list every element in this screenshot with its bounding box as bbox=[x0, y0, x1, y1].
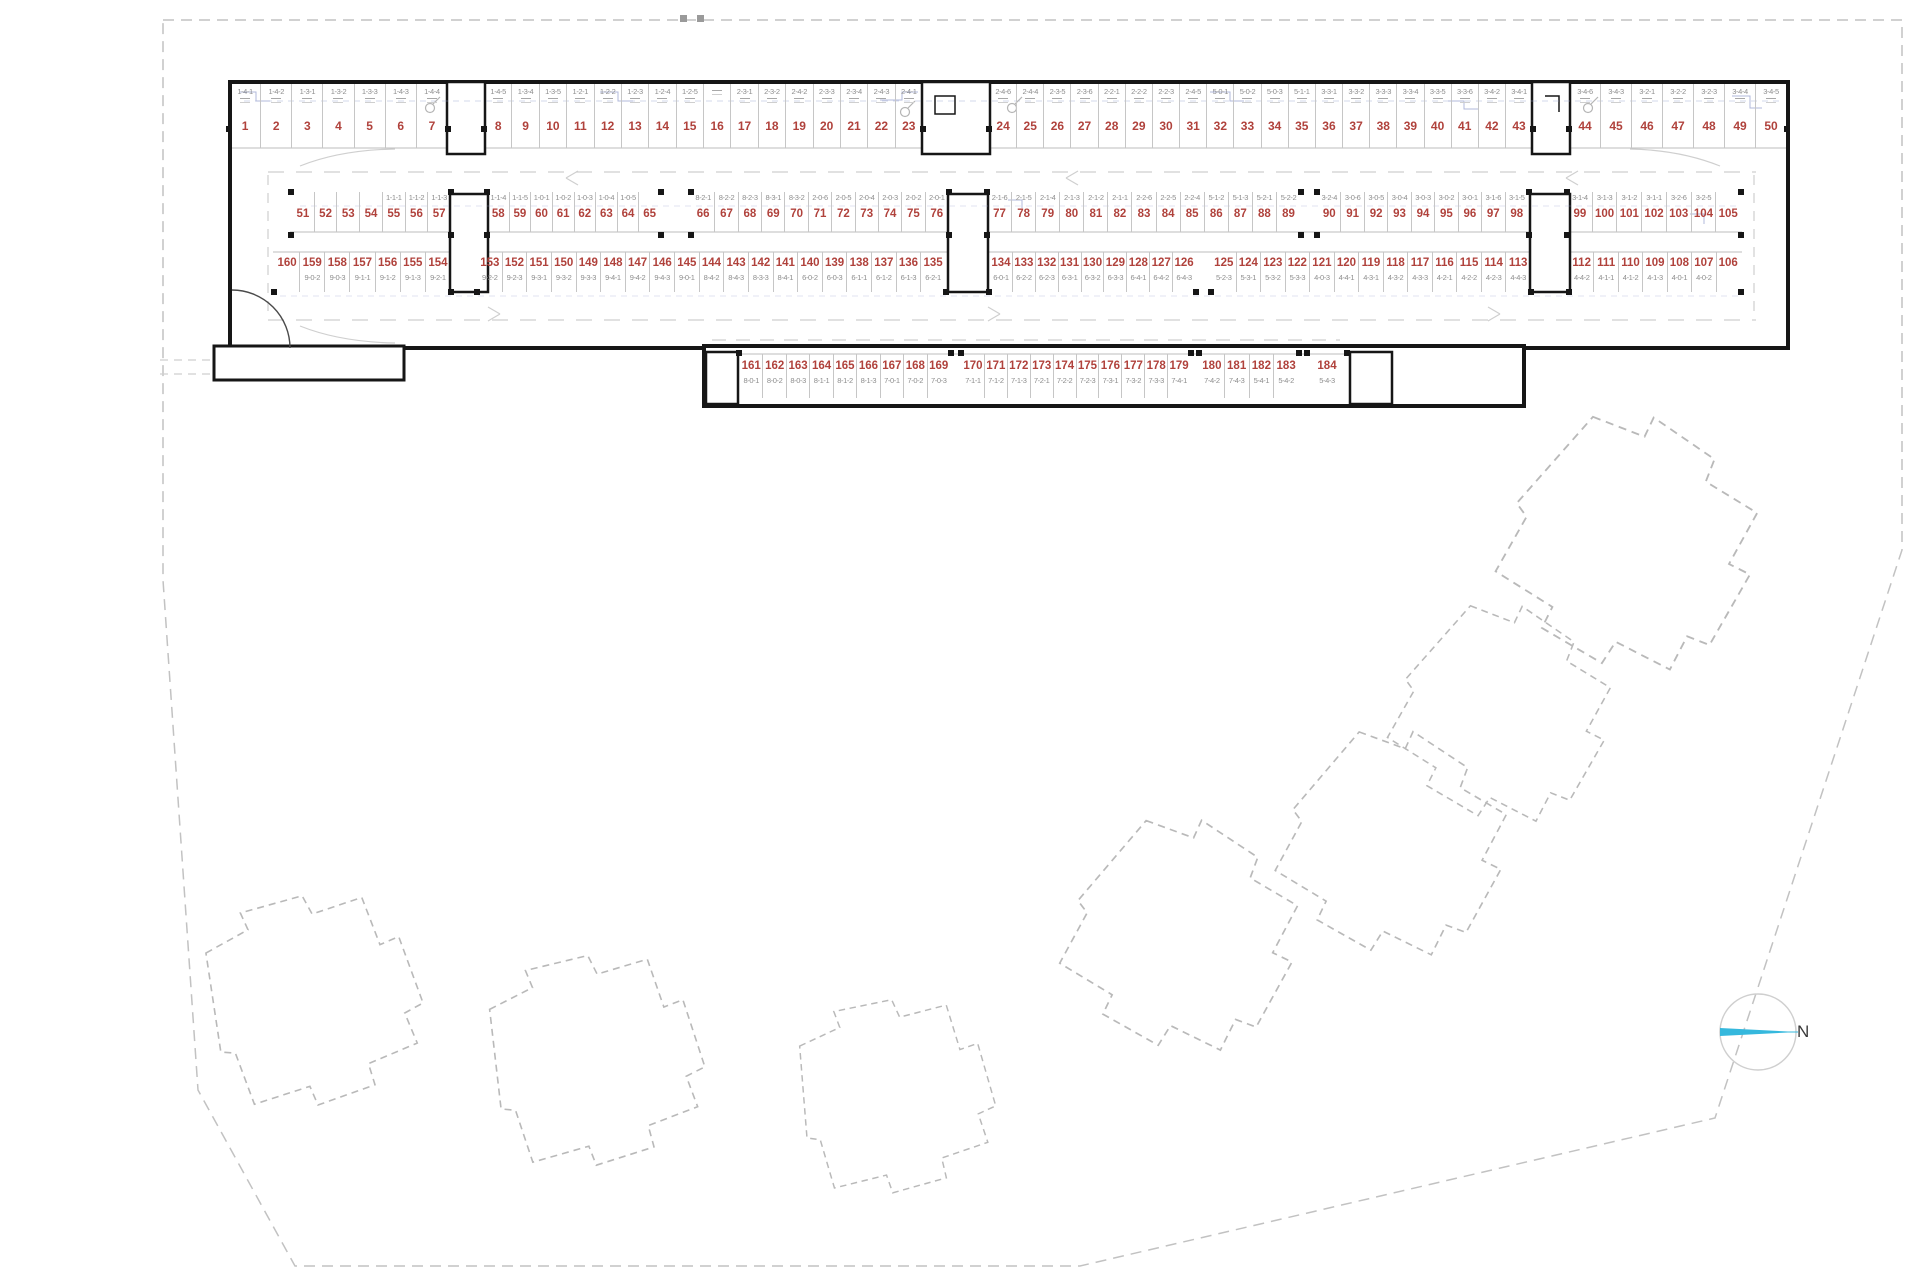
parking-stall[interactable]: 3-4-644 bbox=[1570, 84, 1600, 148]
parking-stall[interactable]: 3-0-592 bbox=[1364, 192, 1387, 232]
parking-stall[interactable]: 1469-4-3 bbox=[649, 252, 674, 292]
parking-stall[interactable]: 1479-4-2 bbox=[625, 252, 650, 292]
parking-stall[interactable]: 3-1-697 bbox=[1481, 192, 1504, 232]
stall-number: 2 bbox=[261, 120, 291, 132]
stall-number: 114 bbox=[1482, 258, 1506, 270]
unit-code: 3-2-2 bbox=[1663, 88, 1693, 103]
stall-number: 39 bbox=[1397, 120, 1423, 132]
parking-stall[interactable]: 2-0-473 bbox=[855, 192, 878, 232]
parking-stall[interactable]: 1174-3-3 bbox=[1407, 252, 1432, 292]
unit-code: 2-2-2 bbox=[1126, 88, 1152, 103]
parking-stall[interactable]: 3-3-136 bbox=[1315, 84, 1342, 148]
stall-number: 158 bbox=[325, 258, 349, 270]
parking-stall[interactable]: 1396-0-3 bbox=[822, 252, 847, 292]
unit-code: 2-3-4 bbox=[841, 88, 867, 103]
parking-stall[interactable]: 1225-3-3 bbox=[1285, 252, 1310, 292]
parking-stall[interactable]: 1204-4-1 bbox=[1334, 252, 1359, 292]
parking-stall[interactable]: 2-0-572 bbox=[831, 192, 854, 232]
parking-stall[interactable]: 1-2-414 bbox=[648, 84, 675, 148]
stall-number: 43 bbox=[1506, 120, 1532, 132]
unit-code: 6-2-1 bbox=[921, 274, 945, 282]
parking-stall[interactable]: 1-1-559 bbox=[509, 192, 531, 232]
stall-number: 176 bbox=[1099, 361, 1121, 373]
stall-number: 174 bbox=[1054, 361, 1076, 373]
parking-stall[interactable]: 3-1-1102 bbox=[1641, 192, 1666, 232]
parking-stall[interactable]: 3-2-146 bbox=[1631, 84, 1662, 148]
parking-stall[interactable]: 3-1-2101 bbox=[1616, 192, 1641, 232]
parking-stall[interactable]: 1296-3-3 bbox=[1103, 252, 1126, 292]
parking-stall[interactable]: 3-2-6103 bbox=[1666, 192, 1691, 232]
parking-stall[interactable]: 1638-0-3 bbox=[786, 354, 809, 398]
stall-number: 75 bbox=[902, 209, 924, 221]
floor-plan-page: N 1-4-111-4-221-3-131-3-241-3-351-4-361-… bbox=[0, 0, 1920, 1280]
parking-stall[interactable]: 1727-1-3 bbox=[1007, 354, 1030, 398]
stall-number: 111 bbox=[1594, 258, 1617, 270]
parking-stall[interactable]: 1459-0-1 bbox=[674, 252, 699, 292]
stall-number: 142 bbox=[749, 258, 773, 270]
stall-number: 72 bbox=[832, 209, 854, 221]
parking-stall[interactable]: 2-1-281 bbox=[1083, 192, 1107, 232]
parking-stall[interactable]: 1-0-261 bbox=[552, 192, 574, 232]
parking-stall[interactable]: 1529-2-3 bbox=[502, 252, 527, 292]
parking-stall[interactable]: 2-0-275 bbox=[901, 192, 924, 232]
unit-code: 9-4-2 bbox=[626, 274, 650, 282]
stall-number: 105 bbox=[1716, 209, 1740, 221]
unit-code: 7-0-3 bbox=[928, 377, 950, 385]
parking-stall[interactable]: 1336-2-2 bbox=[1012, 252, 1035, 292]
parking-stall[interactable]: 1-3-510 bbox=[539, 84, 566, 148]
stall-number: 82 bbox=[1108, 209, 1131, 221]
parking-stall[interactable]: 3-4-345 bbox=[1600, 84, 1631, 148]
parking-stall[interactable]: 2-4-531 bbox=[1179, 84, 1206, 148]
parking-stall[interactable]: 3-0-394 bbox=[1411, 192, 1434, 232]
unit-code: 5-4-1 bbox=[1250, 377, 1274, 385]
unit-code: 7-0-1 bbox=[881, 377, 903, 385]
parking-stall[interactable]: 2-3-421 bbox=[840, 84, 867, 148]
unit-code: 3-4-1 bbox=[1506, 88, 1532, 103]
stall-number: 17 bbox=[731, 120, 757, 132]
unit-code: 2-0-3 bbox=[879, 194, 901, 202]
parking-stall[interactable]: 1658-1-2 bbox=[833, 354, 856, 398]
parking-stall[interactable]: 3-0-196 bbox=[1458, 192, 1481, 232]
stall-number: 37 bbox=[1343, 120, 1369, 132]
parking-stall[interactable]: 1194-3-1 bbox=[1358, 252, 1383, 292]
unit-code: 8-2-1 bbox=[692, 194, 714, 202]
stall-number: 85 bbox=[1181, 209, 1204, 221]
unit-code: 3-1-4 bbox=[1568, 194, 1592, 202]
parking-stall[interactable]: 1326-2-3 bbox=[1035, 252, 1058, 292]
stall-number: 162 bbox=[763, 361, 785, 373]
unit-code: 6-4-1 bbox=[1127, 274, 1149, 282]
stall-number: 145 bbox=[675, 258, 699, 270]
parking-stall[interactable]: 1-0-362 bbox=[574, 192, 596, 232]
parking-stall[interactable]: 3-3-641 bbox=[1451, 84, 1478, 148]
parking-stall[interactable]: 3-3-540 bbox=[1424, 84, 1451, 148]
parking-stall[interactable]: 1707-1-1 bbox=[962, 354, 984, 398]
parking-stall[interactable]: 2-1-677 bbox=[988, 192, 1011, 232]
stall-number: 160 bbox=[275, 258, 299, 270]
parking-stall[interactable]: 3-4-449 bbox=[1724, 84, 1755, 148]
stall-number: 124 bbox=[1237, 258, 1261, 270]
parking-stall[interactable]: 1438-4-3 bbox=[723, 252, 748, 292]
parking-stall[interactable]: 1-0-463 bbox=[595, 192, 617, 232]
stall-number: 153 bbox=[478, 258, 502, 270]
parking-stall[interactable]: 1677-0-1 bbox=[880, 354, 903, 398]
parking-stall[interactable]: 1687-0-2 bbox=[903, 354, 926, 398]
parking-stall[interactable]: 1-1-458 bbox=[488, 192, 509, 232]
unit-code: 1-4-4 bbox=[417, 88, 447, 103]
stall-number: 36 bbox=[1316, 120, 1342, 132]
parking-stall[interactable]: 1599-0-2 bbox=[299, 252, 324, 292]
parking-stall[interactable]: 5-2-188 bbox=[1252, 192, 1276, 232]
parking-stall[interactable]: 1306-3-2 bbox=[1081, 252, 1104, 292]
parking-stall[interactable]: 1418-4-1 bbox=[773, 252, 798, 292]
parking-stall[interactable]: 1144-2-3 bbox=[1481, 252, 1506, 292]
unit-code: 1-3-1 bbox=[292, 88, 322, 103]
parking-stall[interactable]: 1276-4-2 bbox=[1149, 252, 1172, 292]
parking-stall[interactable]: 1406-0-2 bbox=[797, 252, 822, 292]
parking-stall[interactable]: 1-2-313 bbox=[621, 84, 648, 148]
parking-stall[interactable]: 1286-4-1 bbox=[1126, 252, 1149, 292]
parking-stall[interactable]: 1519-3-1 bbox=[526, 252, 551, 292]
parking-stall[interactable]: 1737-2-1 bbox=[1030, 354, 1053, 398]
parking-stall[interactable]: 16 bbox=[703, 84, 730, 148]
unit-code: 3-0-1 bbox=[1459, 194, 1481, 202]
parking-stall[interactable]: 1648-1-1 bbox=[809, 354, 832, 398]
unit-code: 3-3-2 bbox=[1343, 88, 1369, 103]
parking-stall[interactable]: 1316-3-1 bbox=[1058, 252, 1081, 292]
stall-number: 119 bbox=[1359, 258, 1383, 270]
parking-stall[interactable]: 1697-0-3 bbox=[927, 354, 950, 398]
parking-stall[interactable]: 2-4-322 bbox=[867, 84, 894, 148]
unit-code: 3-4-5 bbox=[1756, 88, 1786, 103]
parking-stall[interactable]: 1-0-160 bbox=[530, 192, 552, 232]
parking-stall[interactable]: 8-2-267 bbox=[714, 192, 737, 232]
parking-stall[interactable]: 1124-4-2 bbox=[1570, 252, 1593, 292]
parking-stall[interactable]: 52 bbox=[314, 192, 337, 232]
unit-code: 3-0-2 bbox=[1435, 194, 1457, 202]
parking-stall[interactable]: 1-3-49 bbox=[511, 84, 538, 148]
stall-number: 48 bbox=[1694, 120, 1724, 132]
parking-stall[interactable]: 3-4-242 bbox=[1478, 84, 1505, 148]
parking-stall[interactable]: 5-1-387 bbox=[1228, 192, 1252, 232]
parking-stall[interactable]: 1-4-47 bbox=[416, 84, 447, 148]
stall-number: 54 bbox=[360, 209, 382, 221]
stall-number: 84 bbox=[1157, 209, 1180, 221]
unit-code: 9-0-3 bbox=[325, 274, 349, 282]
parking-stall[interactable]: 2-3-526 bbox=[1043, 84, 1070, 148]
unit-code: 4-4-1 bbox=[1335, 274, 1359, 282]
parking-stall[interactable]: 3-1-499 bbox=[1568, 192, 1592, 232]
unit-code: 4-1-2 bbox=[1619, 274, 1642, 282]
unit-code: 8-0-3 bbox=[787, 377, 809, 385]
unit-code: 2-4-2 bbox=[786, 88, 812, 103]
parking-stall[interactable]: 2-3-117 bbox=[730, 84, 757, 148]
stall-number: 135 bbox=[921, 258, 945, 270]
parking-stall[interactable]: 1184-3-2 bbox=[1383, 252, 1408, 292]
stall-number: 112 bbox=[1570, 258, 1593, 270]
parking-stall[interactable]: 1376-1-2 bbox=[871, 252, 896, 292]
parking-stall[interactable]: 3-3-338 bbox=[1369, 84, 1396, 148]
unit-code: 8-1-2 bbox=[834, 377, 856, 385]
parking-stall[interactable]: 2-2-683 bbox=[1131, 192, 1155, 232]
parking-stall[interactable]: 1757-2-3 bbox=[1076, 354, 1099, 398]
unit-code: 3-2-1 bbox=[1632, 88, 1662, 103]
parking-stall[interactable]: 1-4-22 bbox=[260, 84, 291, 148]
unit-code: 5-2-2 bbox=[1277, 194, 1300, 202]
parking-stall[interactable]: 1366-1-3 bbox=[896, 252, 921, 292]
parking-stall[interactable]: 1-4-11 bbox=[230, 84, 260, 148]
unit-code: 3-1-6 bbox=[1482, 194, 1504, 202]
parking-stall[interactable]: 3-0-691 bbox=[1340, 192, 1363, 232]
parking-stall[interactable]: 1356-2-1 bbox=[920, 252, 945, 292]
parking-stall[interactable]: 1549-2-1 bbox=[425, 252, 450, 292]
parking-stall[interactable]: 2-3-218 bbox=[758, 84, 785, 148]
unit-code: 9-1-1 bbox=[350, 274, 374, 282]
parking-stall[interactable]: 3-0-295 bbox=[1434, 192, 1457, 232]
parking-stall[interactable]: 1767-3-1 bbox=[1098, 354, 1121, 398]
parking-stall[interactable]: 3-0-493 bbox=[1387, 192, 1410, 232]
parking-stall[interactable]: 2-2-330 bbox=[1152, 84, 1179, 148]
parking-stall[interactable]: 5-0-233 bbox=[1233, 84, 1260, 148]
unit-code: 7-0-2 bbox=[904, 377, 926, 385]
parking-stall[interactable]: 1-3-13 bbox=[291, 84, 322, 148]
stall-group: 1-1-4581-1-5591-0-1601-0-2611-0-3621-0-4… bbox=[488, 192, 660, 232]
parking-stall[interactable]: 3-4-550 bbox=[1755, 84, 1786, 148]
unit-code: 2-3-3 bbox=[814, 88, 840, 103]
parking-stall[interactable]: 5-2-289 bbox=[1276, 192, 1300, 232]
parking-stall[interactable]: 2-0-374 bbox=[878, 192, 901, 232]
parking-stall[interactable]: 3-2-348 bbox=[1693, 84, 1724, 148]
stall-number: 92 bbox=[1365, 209, 1387, 221]
parking-stall[interactable]: 2-2-128 bbox=[1098, 84, 1125, 148]
parking-stall[interactable]: 1-3-35 bbox=[354, 84, 385, 148]
parking-stall[interactable]: 3-2-490 bbox=[1318, 192, 1340, 232]
parking-stall[interactable]: 2-3-320 bbox=[813, 84, 840, 148]
unit-code: 5-3-2 bbox=[1261, 274, 1285, 282]
unit-code: 5-0-2 bbox=[1234, 88, 1260, 103]
parking-stall[interactable]: 1114-1-1 bbox=[1593, 252, 1617, 292]
parking-stall[interactable]: 8-2-368 bbox=[738, 192, 761, 232]
unit-code: 7-1-3 bbox=[1008, 377, 1030, 385]
parking-stall[interactable]: 3-4-143 bbox=[1505, 84, 1532, 148]
parking-stall[interactable]: 1214-0-3 bbox=[1309, 252, 1334, 292]
parking-stall[interactable]: 1807-4-2 bbox=[1200, 354, 1224, 398]
unit-code: 6-3-2 bbox=[1082, 274, 1104, 282]
unit-code: 1-0-5 bbox=[618, 194, 639, 202]
unit-code: 9-3-2 bbox=[552, 274, 576, 282]
stall-number: 97 bbox=[1482, 209, 1504, 221]
parking-stall[interactable]: 5-1-135 bbox=[1288, 84, 1315, 148]
parking-stall[interactable]: 2-4-425 bbox=[1016, 84, 1043, 148]
unit-code: 2-3-6 bbox=[1071, 88, 1097, 103]
parking-stall[interactable]: 2-1-479 bbox=[1035, 192, 1059, 232]
parking-stall[interactable]: 2-1-578 bbox=[1011, 192, 1035, 232]
stall-number: 68 bbox=[739, 209, 761, 221]
unit-code: 7-1-1 bbox=[962, 377, 984, 385]
parking-stall[interactable]: 51 bbox=[292, 192, 314, 232]
unit-code: 5-1-3 bbox=[1229, 194, 1252, 202]
parking-stall[interactable]: 1-4-58 bbox=[485, 84, 511, 148]
stall-number: 45 bbox=[1601, 120, 1631, 132]
stall-number: 155 bbox=[401, 258, 425, 270]
stall-number: 44 bbox=[1570, 120, 1600, 132]
parking-stall[interactable]: 1255-2-3 bbox=[1212, 252, 1236, 292]
stall-number: 18 bbox=[759, 120, 785, 132]
parking-stall[interactable]: 2-4-219 bbox=[785, 84, 812, 148]
unit-code: 6-1-2 bbox=[872, 274, 896, 282]
unit-code: 8-1-1 bbox=[810, 377, 832, 385]
unit-code: 3-1-3 bbox=[1593, 194, 1617, 202]
parking-stall[interactable]: 1-1-357 bbox=[427, 192, 450, 232]
stall-number: 148 bbox=[601, 258, 625, 270]
parking-stall[interactable]: 2-2-584 bbox=[1156, 192, 1180, 232]
unit-code: 3-0-6 bbox=[1341, 194, 1363, 202]
parking-stall[interactable]: 1-1-155 bbox=[382, 192, 405, 232]
unit-code: 9-2-2 bbox=[478, 274, 502, 282]
stall-number: 149 bbox=[577, 258, 601, 270]
stall-number: 109 bbox=[1643, 258, 1666, 270]
parking-stall[interactable]: 1235-3-2 bbox=[1260, 252, 1285, 292]
parking-stall[interactable]: 2-1-182 bbox=[1107, 192, 1131, 232]
parking-stall[interactable]: 1-1-256 bbox=[405, 192, 428, 232]
parking-stall[interactable]: 1134-4-3 bbox=[1505, 252, 1530, 292]
parking-stall[interactable]: 1509-3-2 bbox=[551, 252, 576, 292]
parking-stall[interactable]: 3-3-237 bbox=[1342, 84, 1369, 148]
stall-number: 4 bbox=[323, 120, 353, 132]
parking-stall[interactable]: 3-3-439 bbox=[1396, 84, 1423, 148]
parking-stall[interactable]: 1668-1-3 bbox=[856, 354, 879, 398]
stall-number: 40 bbox=[1425, 120, 1451, 132]
unit-code: 8-2-2 bbox=[715, 194, 737, 202]
parking-stall[interactable]: 2-0-176 bbox=[925, 192, 948, 232]
parking-stall[interactable]: 2-2-229 bbox=[1125, 84, 1152, 148]
parking-stall[interactable]: 1499-3-3 bbox=[576, 252, 601, 292]
parking-stall[interactable]: 1835-4-2 bbox=[1273, 354, 1298, 398]
parking-stall[interactable]: 1386-1-1 bbox=[846, 252, 871, 292]
parking-stall[interactable]: 1266-4-3 bbox=[1172, 252, 1195, 292]
unit-code: 3-4-3 bbox=[1601, 88, 1631, 103]
parking-stall[interactable]: 1845-4-3 bbox=[1308, 354, 1346, 398]
parking-stall[interactable]: 160 bbox=[275, 252, 299, 292]
stall-number: 59 bbox=[510, 209, 531, 221]
stall-number: 143 bbox=[724, 258, 748, 270]
parking-stall[interactable]: 1589-0-3 bbox=[324, 252, 349, 292]
parking-stall[interactable]: 1428-3-3 bbox=[748, 252, 773, 292]
unit-code: 3-3-1 bbox=[1316, 88, 1342, 103]
stall-number: 184 bbox=[1308, 361, 1346, 373]
unit-code: 9-0-1 bbox=[675, 274, 699, 282]
parking-stall[interactable]: 1084-0-1 bbox=[1667, 252, 1691, 292]
parking-stall[interactable]: 105 bbox=[1715, 192, 1740, 232]
stall-number: 118 bbox=[1384, 258, 1408, 270]
unit-code bbox=[704, 88, 730, 95]
unit-code: 5-0-3 bbox=[1262, 88, 1288, 103]
parking-stall[interactable]: 3-1-3100 bbox=[1592, 192, 1617, 232]
stall-number: 95 bbox=[1435, 209, 1457, 221]
parking-stall[interactable]: 1569-1-2 bbox=[375, 252, 400, 292]
parking-stall[interactable]: 1628-0-2 bbox=[762, 354, 785, 398]
parking-stall[interactable]: 1164-2-1 bbox=[1432, 252, 1457, 292]
parking-stall[interactable]: 2-1-380 bbox=[1059, 192, 1083, 232]
parking-stall[interactable]: 1-2-515 bbox=[676, 84, 703, 148]
parking-stall[interactable]: 1579-1-1 bbox=[349, 252, 374, 292]
parking-stall[interactable]: 1777-3-2 bbox=[1121, 354, 1144, 398]
stall-number: 132 bbox=[1036, 258, 1058, 270]
parking-stall[interactable]: 2-2-485 bbox=[1180, 192, 1204, 232]
parking-stall[interactable]: 1797-4-1 bbox=[1167, 354, 1190, 398]
parking-stall[interactable]: 5-0-132 bbox=[1206, 84, 1233, 148]
parking-stall[interactable]: 1-0-564 bbox=[617, 192, 639, 232]
parking-stall[interactable]: 65 bbox=[638, 192, 660, 232]
stall-number: 96 bbox=[1459, 209, 1481, 221]
stall-number: 89 bbox=[1277, 209, 1300, 221]
unit-code: 5-4-3 bbox=[1308, 377, 1346, 385]
parking-stall[interactable]: 5-1-286 bbox=[1204, 192, 1228, 232]
parking-stall[interactable]: 106 bbox=[1716, 252, 1740, 292]
parking-stall[interactable]: 2-4-123 bbox=[895, 84, 922, 148]
parking-stall[interactable]: 2-0-671 bbox=[808, 192, 831, 232]
parking-stall[interactable]: 1539-2-2 bbox=[478, 252, 502, 292]
parking-stall[interactable]: 1346-0-1 bbox=[990, 252, 1012, 292]
parking-stall[interactable]: 1-4-36 bbox=[385, 84, 416, 148]
parking-stall[interactable]: 1245-3-1 bbox=[1236, 252, 1261, 292]
parking-stall[interactable]: 1618-0-1 bbox=[740, 354, 762, 398]
parking-stall[interactable]: 1489-4-1 bbox=[600, 252, 625, 292]
unit-code: 7-3-3 bbox=[1145, 377, 1167, 385]
parking-stall[interactable]: 1825-4-1 bbox=[1249, 354, 1274, 398]
parking-stall[interactable]: 8-3-270 bbox=[784, 192, 807, 232]
parking-stall[interactable]: 2-3-627 bbox=[1070, 84, 1097, 148]
parking-stall[interactable]: 8-2-166 bbox=[692, 192, 714, 232]
parking-stall[interactable]: 1747-2-2 bbox=[1053, 354, 1076, 398]
parking-stall[interactable]: 1-3-24 bbox=[322, 84, 353, 148]
parking-stall[interactable]: 1-2-111 bbox=[566, 84, 593, 148]
parking-stall[interactable]: 1154-2-2 bbox=[1456, 252, 1481, 292]
parking-stall[interactable]: 3-2-5104 bbox=[1691, 192, 1716, 232]
parking-stall[interactable]: 1-2-212 bbox=[594, 84, 621, 148]
parking-stall[interactable]: 3-2-247 bbox=[1662, 84, 1693, 148]
parking-stall[interactable]: 54 bbox=[359, 192, 382, 232]
parking-stall[interactable]: 2-4-624 bbox=[990, 84, 1016, 148]
unit-code: 2-1-5 bbox=[1012, 194, 1035, 202]
stall-number: 71 bbox=[809, 209, 831, 221]
parking-stall[interactable]: 1787-3-3 bbox=[1144, 354, 1167, 398]
parking-stall[interactable]: 1717-1-2 bbox=[984, 354, 1007, 398]
parking-stall[interactable]: 53 bbox=[336, 192, 359, 232]
stall-number: 31 bbox=[1180, 120, 1206, 132]
parking-stall[interactable]: 8-3-169 bbox=[761, 192, 784, 232]
stall-number: 33 bbox=[1234, 120, 1260, 132]
parking-stall[interactable]: 1094-1-3 bbox=[1642, 252, 1666, 292]
parking-stall[interactable]: 1104-1-2 bbox=[1618, 252, 1642, 292]
future-building-outlines bbox=[193, 380, 1802, 1204]
parking-stall[interactable]: 1817-4-3 bbox=[1224, 354, 1249, 398]
unit-code: 4-4-3 bbox=[1506, 274, 1530, 282]
parking-stall[interactable]: 5-0-334 bbox=[1261, 84, 1288, 148]
parking-stall[interactable]: 1559-1-3 bbox=[400, 252, 425, 292]
stall-number: 183 bbox=[1274, 361, 1298, 373]
unit-code: 1-2-4 bbox=[649, 88, 675, 103]
stall-number: 7 bbox=[417, 120, 447, 132]
stall-group: 3-1-4993-1-31003-1-21013-1-11023-2-61033… bbox=[1568, 192, 1740, 232]
parking-stall[interactable]: 1448-4-2 bbox=[699, 252, 724, 292]
stall-number: 9 bbox=[512, 120, 538, 132]
stall-number: 122 bbox=[1286, 258, 1310, 270]
stall-number: 13 bbox=[622, 120, 648, 132]
parking-stall[interactable]: 1074-0-2 bbox=[1691, 252, 1715, 292]
parking-stall[interactable]: 3-1-598 bbox=[1505, 192, 1528, 232]
